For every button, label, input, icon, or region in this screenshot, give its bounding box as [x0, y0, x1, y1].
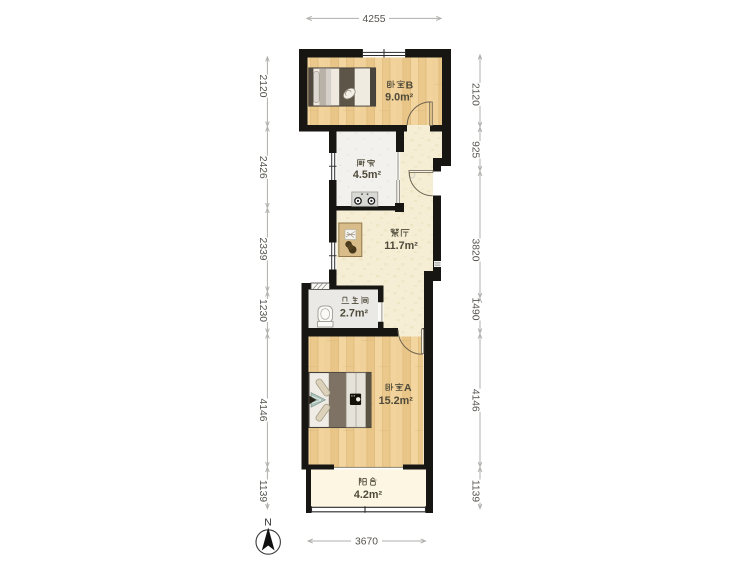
svg-text:2120: 2120 — [470, 83, 481, 106]
svg-text:9.0m²: 9.0m² — [385, 91, 414, 103]
svg-text:1230: 1230 — [257, 299, 268, 322]
svg-text:1139: 1139 — [257, 480, 268, 502]
svg-text:A: A — [404, 382, 412, 394]
svg-text:11.7m²: 11.7m² — [384, 240, 418, 252]
svg-text:1490: 1490 — [470, 298, 481, 321]
svg-text:15.2m²: 15.2m² — [379, 395, 414, 407]
svg-text:4255: 4255 — [363, 14, 386, 25]
svg-text:2120: 2120 — [257, 75, 268, 98]
svg-text:4146: 4146 — [470, 389, 481, 412]
svg-text:2339: 2339 — [257, 238, 268, 261]
svg-text:1139: 1139 — [470, 480, 481, 502]
svg-text:3820: 3820 — [470, 239, 481, 262]
svg-text:B: B — [406, 79, 414, 91]
svg-text:4.5m²: 4.5m² — [353, 169, 382, 181]
svg-text:2.7m²: 2.7m² — [340, 308, 369, 320]
svg-text:3670: 3670 — [355, 537, 378, 548]
svg-text:925: 925 — [470, 141, 481, 158]
svg-text:N: N — [264, 517, 272, 529]
svg-text:2426: 2426 — [257, 156, 268, 179]
svg-text:4146: 4146 — [257, 399, 268, 422]
svg-text:4.2m²: 4.2m² — [354, 489, 383, 501]
